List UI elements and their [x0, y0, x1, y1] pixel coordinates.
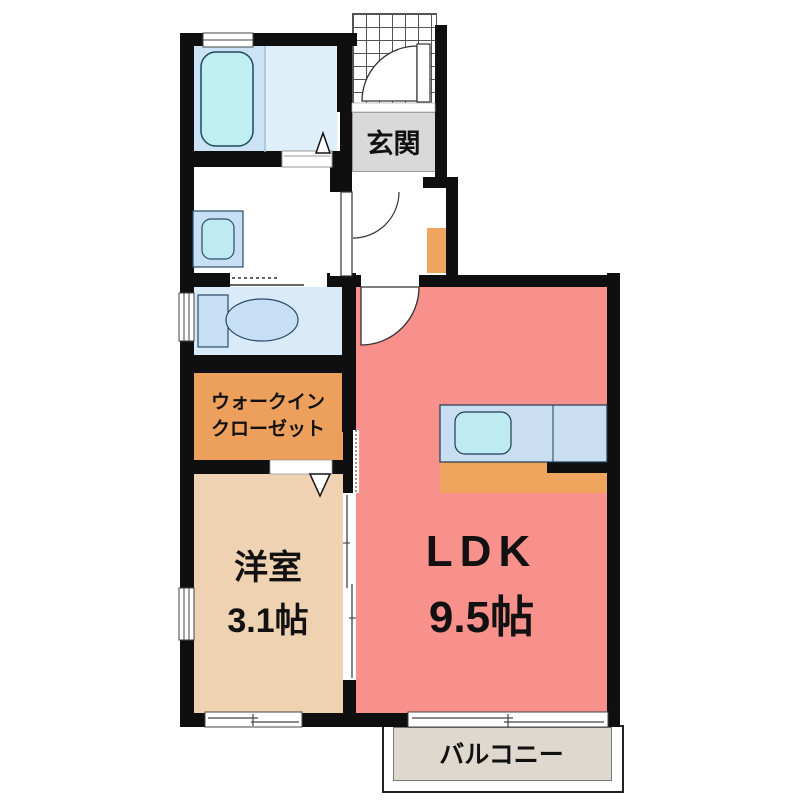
- toilet-door: [230, 273, 327, 287]
- shoe-cabinet: [427, 228, 446, 273]
- ldk-label: LDK 9.5帖: [356, 505, 607, 665]
- wall-segment: [180, 33, 194, 727]
- entrance-label: 玄関: [352, 112, 435, 170]
- wall-segment: [423, 177, 458, 188]
- washroom-floor: [193, 167, 330, 273]
- wall-segment: [180, 33, 357, 46]
- wall-segment: [343, 432, 354, 493]
- wall-segment: [435, 25, 447, 177]
- toilet-room-floor: [192, 287, 343, 355]
- wall-segment: [180, 460, 270, 474]
- wall-segment: [180, 355, 356, 373]
- wall-segment: [180, 151, 282, 167]
- western-room-bottom-window: [205, 712, 302, 727]
- wall-segment: [607, 273, 620, 727]
- balcony-label: バルコニー: [393, 727, 610, 779]
- bathroom-washing-area-floor: [265, 45, 337, 153]
- western-room-label: 洋室 3.1帖: [193, 535, 343, 655]
- floor-plan: 玄関 ウォークイン クローゼット 洋室 3.1帖 LDK 9.5帖 バルコニー: [0, 0, 800, 800]
- bathroom-floor: [194, 45, 265, 153]
- walk-in-closet-label: ウォークイン クローゼット: [193, 373, 343, 460]
- wall-segment: [337, 33, 352, 112]
- wall-segment: [547, 462, 620, 473]
- wall-segment: [180, 713, 205, 727]
- wall-segment: [340, 112, 352, 192]
- wall-segment: [446, 188, 458, 277]
- wall-segment: [180, 273, 230, 287]
- wall-segment: [342, 273, 356, 432]
- entrance-porch-hatched: [352, 13, 437, 105]
- wall-segment: [356, 275, 362, 287]
- wall-segment: [302, 713, 408, 727]
